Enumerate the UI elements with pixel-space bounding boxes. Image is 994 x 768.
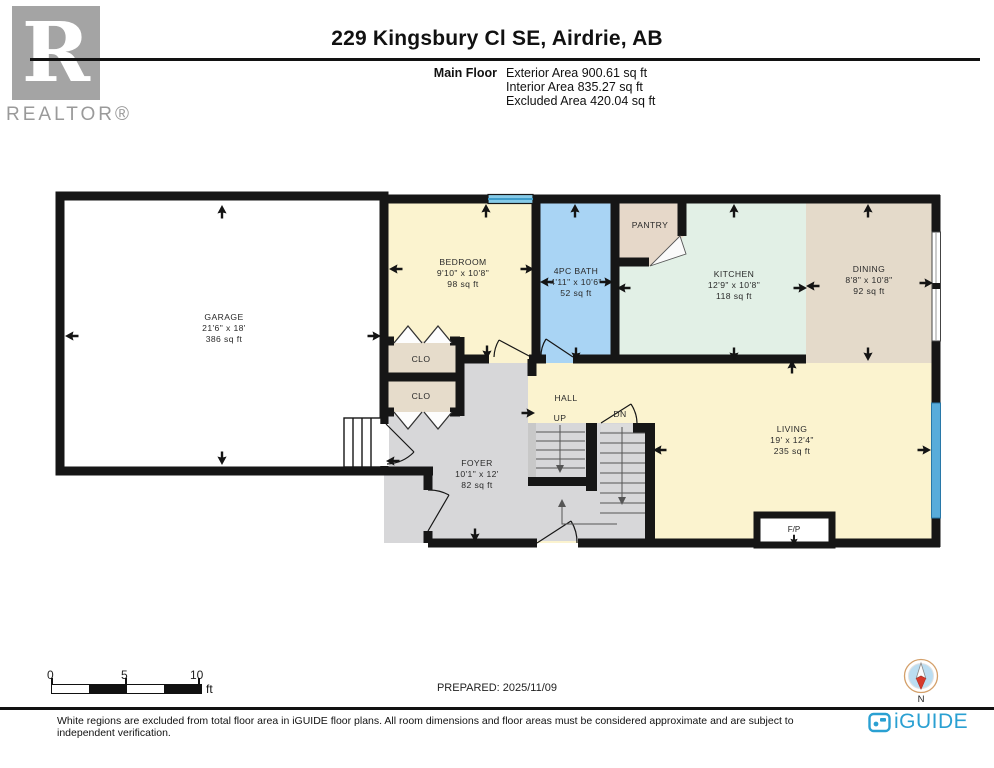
svg-text:386 sq ft: 386 sq ft	[206, 334, 243, 344]
garage-label: GARAGE 21'6" x 18' 386 sq ft	[202, 312, 246, 344]
svg-text:52 sq ft: 52 sq ft	[560, 288, 592, 298]
svg-text:8'8" x 10'8": 8'8" x 10'8"	[845, 275, 892, 285]
stairs-threshold	[601, 424, 632, 431]
hall-label: HALL	[554, 393, 577, 403]
living-window	[932, 403, 941, 518]
svg-text:21'6" x 18': 21'6" x 18'	[202, 323, 246, 333]
prepared-date: PREPARED: 2025/11/09	[0, 682, 994, 694]
scale-tick-10: 10	[190, 668, 203, 682]
stairs-top-stub	[633, 423, 653, 433]
svg-text:92 sq ft: 92 sq ft	[853, 286, 885, 296]
title-divider	[30, 58, 980, 61]
footer-divider	[0, 707, 994, 710]
svg-text:82 sq ft: 82 sq ft	[461, 480, 493, 490]
svg-text:118 sq ft: 118 sq ft	[716, 291, 752, 301]
svg-text:19' x 12'4": 19' x 12'4"	[770, 435, 814, 445]
disclaimer-text: White regions are excluded from total fl…	[57, 715, 847, 739]
svg-text:4'11" x 10'6": 4'11" x 10'6"	[550, 277, 602, 287]
pantry-label: PANTRY	[632, 220, 668, 230]
closet-b-label: CLO	[412, 391, 431, 401]
iguide-logo: iGUIDE	[868, 710, 968, 734]
svg-text:10'1" x 12': 10'1" x 12'	[455, 469, 499, 479]
svg-text:GARAGE: GARAGE	[204, 312, 243, 322]
svg-text:12'9" x 10'8": 12'9" x 10'8"	[708, 280, 760, 290]
garage-steps	[344, 418, 381, 467]
fireplace: F/P	[757, 515, 832, 546]
realtor-logo-label: REALTOR®	[6, 104, 132, 126]
stairs-up-label: UP	[554, 413, 567, 423]
svg-text:DINING: DINING	[853, 264, 885, 274]
foyer-label: FOYER 10'1" x 12' 82 sq ft	[455, 458, 499, 490]
svg-text:FOYER: FOYER	[461, 458, 493, 468]
iguide-camera-icon	[868, 712, 891, 733]
stairs-down-label: DN	[613, 409, 626, 419]
room-fills	[384, 199, 936, 543]
realtor-logo: R	[12, 6, 100, 100]
floor-plan-drawing: F/P	[0, 0, 994, 768]
closet-a-label: CLO	[412, 354, 431, 364]
svg-text:9'10" x 10'8": 9'10" x 10'8"	[437, 268, 489, 278]
realtor-logo-letter: R	[22, 12, 90, 94]
living-label: LIVING 19' x 12'4" 235 sq ft	[770, 424, 814, 456]
floor-plan-page: R REALTOR® 229 Kingsbury Cl SE, Airdrie,…	[0, 0, 994, 768]
garage-door-opening	[379, 424, 389, 466]
stairs-divider-wall	[586, 423, 597, 491]
svg-text:KITCHEN: KITCHEN	[714, 269, 755, 279]
svg-text:235 sq ft: 235 sq ft	[774, 446, 811, 456]
stairs-edge	[528, 423, 536, 477]
svg-text:BEDROOM: BEDROOM	[439, 257, 486, 267]
compass-north-label: N	[898, 694, 944, 705]
svg-text:4PC BATH: 4PC BATH	[554, 266, 599, 276]
svg-text:98 sq ft: 98 sq ft	[447, 279, 479, 289]
iguide-logo-text: iGUIDE	[894, 710, 968, 734]
stairs-right-wall	[645, 423, 655, 541]
stairs-landing-wall	[528, 477, 586, 486]
dining-window-mullion	[933, 283, 941, 289]
fireplace-label: F/P	[788, 525, 800, 534]
svg-text:LIVING: LIVING	[777, 424, 808, 434]
